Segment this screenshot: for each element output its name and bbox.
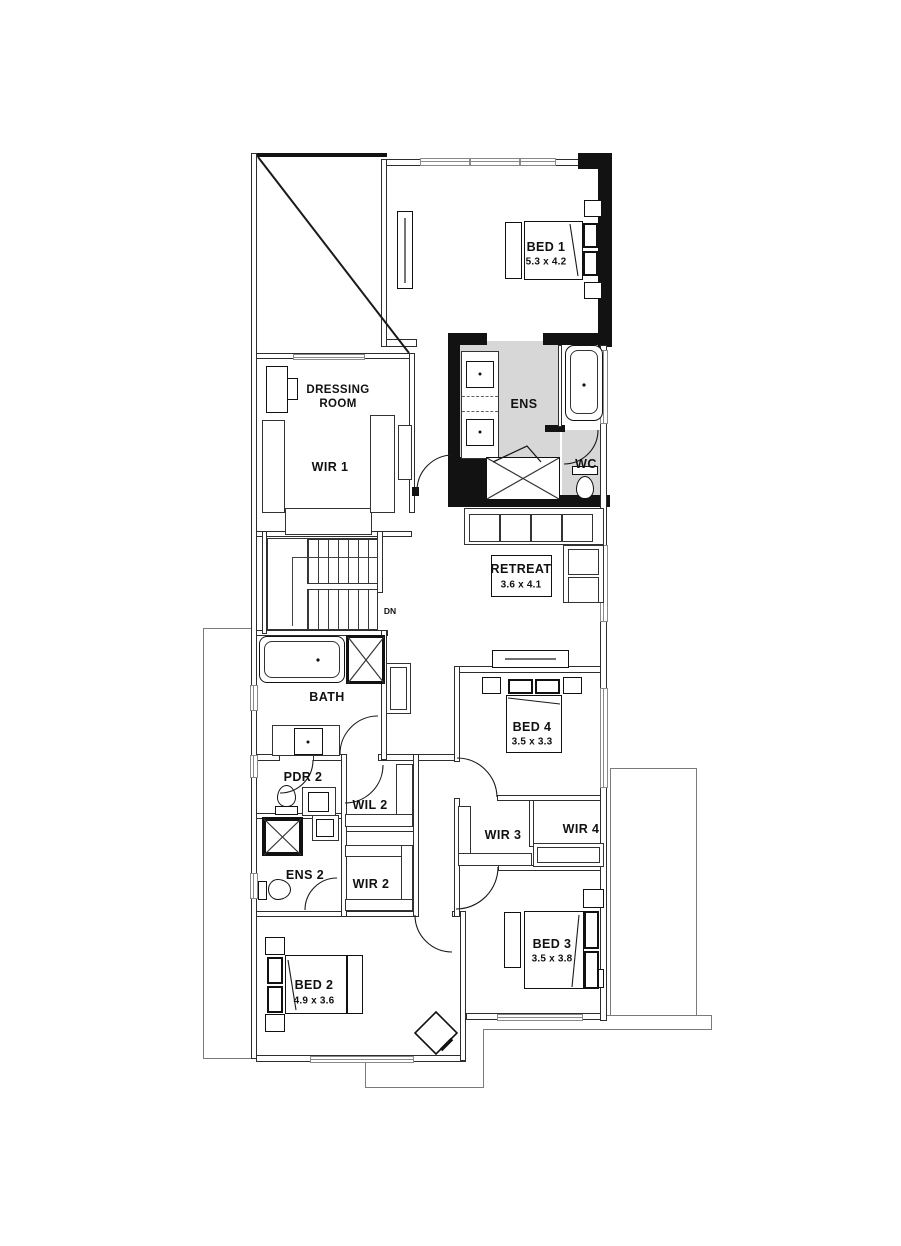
bathtub-drain: [316, 658, 319, 661]
door-arc-bed4: [457, 758, 497, 797]
room-label-wir1: WIR 1: [312, 460, 349, 474]
room-label-wil2: WIL 2: [352, 798, 387, 812]
door-arc-bed3: [456, 867, 498, 909]
room-dims-retreat: 3.6 x 4.1: [501, 580, 542, 591]
room-label-dressing-room: DRESSING: [306, 384, 369, 396]
door-arc-wir1: [417, 455, 453, 491]
room-label-bed2: BED 2: [295, 978, 334, 992]
room-label-ens: ENS: [511, 397, 538, 411]
room-dims-bed4: 3.5 x 3.3: [512, 737, 553, 748]
bed3-fold-line: [572, 915, 579, 987]
bed1-fold-line: [570, 224, 578, 276]
room-label-bed1: BED 1: [527, 240, 566, 254]
bed2-chair: [415, 1012, 457, 1054]
door-arc-ens2: [305, 878, 337, 910]
room-label-retreat: RETREAT: [491, 562, 552, 576]
floor-plan: BED 1 5.3 x 4.2 DRESSING ROOM WIR 1 ENS …: [0, 0, 901, 1246]
room-label-wir3: WIR 3: [485, 828, 522, 842]
ens-pivot-door: [493, 446, 541, 462]
door-arc-bed2: [415, 915, 452, 952]
room-dims-bed2: 4.9 x 3.6: [294, 996, 335, 1007]
room-label-dressing-room: ROOM: [319, 398, 356, 410]
room-dims-bed3: 3.5 x 3.8: [532, 954, 573, 965]
room-label-ens2: ENS 2: [286, 868, 324, 882]
room-label-bath: BATH: [309, 690, 344, 704]
faucet-mark: [307, 741, 310, 744]
plan-linework: [0, 0, 901, 1246]
ens2-shower-x: [264, 819, 301, 855]
faucet-mark: [479, 373, 482, 376]
room-label-wc: WC: [575, 457, 597, 471]
bathtub-drain: [582, 383, 585, 386]
door-arc-bath: [340, 716, 378, 754]
faucet-mark: [479, 431, 482, 434]
room-label-bed3: BED 3: [533, 937, 572, 951]
room-label-wir4: WIR 4: [563, 822, 600, 836]
ens-shower-x: [487, 458, 559, 499]
stairs-dn-label: DN: [384, 606, 396, 616]
room-label-bed4: BED 4: [513, 720, 552, 734]
bath-shower-x: [348, 637, 384, 683]
room-dims-bed1: 5.3 x 4.2: [526, 257, 567, 268]
room-label-pdr2: PDR 2: [284, 770, 323, 784]
bed4-fold-line: [508, 698, 560, 704]
room-label-wir2: WIR 2: [353, 877, 390, 891]
void-diagonal: [258, 157, 409, 353]
